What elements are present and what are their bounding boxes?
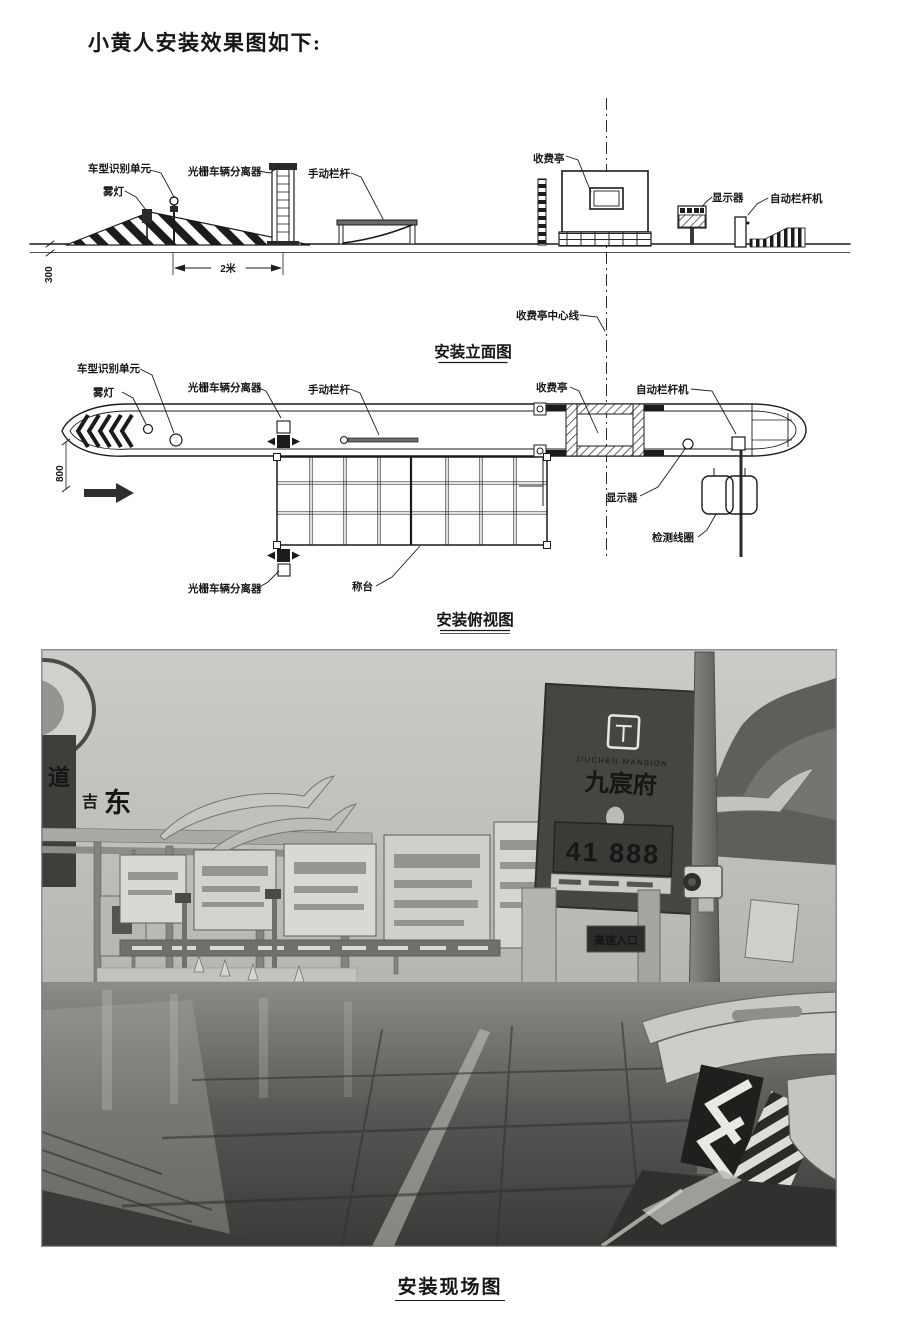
label-manual-barrier: 手动栏杆	[308, 167, 350, 180]
grating-separator-exit-symbol	[267, 549, 300, 576]
plan-leader-lines	[122, 369, 736, 588]
photo-caption-text: 安装现场图	[395, 1277, 504, 1301]
plan-label-grating-separator-entry: 光栅车辆分离器	[187, 381, 262, 394]
plan-label-display: 显示器	[606, 492, 638, 504]
detection-coil-symbol	[702, 468, 757, 514]
side-panel	[745, 900, 799, 963]
billboard-name-cn: 九宸府	[583, 768, 657, 800]
photo-caption: 安装现场图	[0, 1272, 900, 1299]
plan-label-detection-coil: 检测线圈	[652, 531, 694, 544]
site-photo: 道 吉 东	[42, 650, 836, 1246]
manual-barrier-plan-symbol	[341, 437, 419, 444]
label-fog-light: 雾灯	[102, 185, 124, 198]
plan-label-fog-light: 雾灯	[92, 386, 114, 399]
dim-2m: 2米	[173, 253, 283, 275]
elevation-view: 300	[30, 152, 850, 363]
plan-label-auto-barrier: 自动栏杆机	[636, 383, 689, 396]
island-chevrons	[78, 415, 132, 447]
label-grating-separator: 光栅车辆分离器	[187, 165, 262, 178]
plan-label-manual-barrier: 手动栏杆	[308, 383, 350, 396]
display-plan-symbol	[683, 439, 693, 449]
left-banner-char: 道	[48, 765, 70, 790]
label-display: 显示器	[712, 192, 744, 204]
gantry-char-1: 吉	[82, 792, 98, 811]
grating-separator-symbol	[267, 163, 299, 245]
plan-caption: 安装俯视图	[436, 610, 514, 629]
traffic-direction-arrow	[84, 483, 134, 503]
camera-pole	[689, 652, 720, 1012]
document-page: 小黄人安装效果图如下:	[0, 0, 900, 1319]
manual-barrier-symbol	[337, 220, 417, 244]
elevation-caption: 安装立面图	[434, 342, 512, 361]
plan-view: 800	[55, 362, 806, 634]
price-sign-group: 41 888	[551, 822, 673, 894]
booth-posts	[519, 403, 546, 506]
auto-barrier-plan-symbol	[732, 437, 745, 557]
dim-800: 800	[55, 439, 70, 492]
grating-separator-entry-symbol	[267, 421, 300, 448]
plan-label-weighbridge: 称台	[352, 580, 373, 593]
entrance-sign-text: 高速入口	[594, 933, 638, 947]
display-symbol	[678, 206, 706, 245]
label-vehicle-type-unit: 车型识别单元	[88, 162, 151, 175]
weighbridge-grid	[274, 454, 551, 549]
dim-300: 300	[44, 266, 55, 283]
label-auto-barrier: 自动栏杆机	[770, 192, 823, 205]
toll-booth-symbol	[559, 171, 651, 246]
auto-barrier-symbol	[735, 217, 805, 247]
toll-booth-plan-symbol	[546, 404, 664, 456]
island-outline	[62, 404, 806, 456]
technical-diagrams: 300	[0, 0, 900, 650]
label-toll-booth: 收费亭	[533, 152, 565, 165]
plan-label-toll-booth: 收费亭	[536, 381, 568, 394]
plan-label-vehicle-type-unit: 车型识别单元	[77, 362, 140, 375]
left-banner-sign: 道	[42, 735, 76, 887]
fog-light-plan-symbol	[144, 425, 153, 434]
booth-striped-pole	[538, 179, 546, 245]
plan-label-grating-separator-exit: 光栅车辆分离器	[187, 582, 262, 595]
gantry-char-2: 东	[104, 787, 131, 818]
vehicle-type-unit-plan-symbol	[170, 434, 182, 446]
price-sign-text: 41 888	[565, 836, 661, 869]
dim-2m-text: 2米	[220, 262, 237, 275]
dim-800-text: 800	[55, 465, 66, 482]
label-booth-centerline: 收费亭中心线	[516, 309, 579, 322]
